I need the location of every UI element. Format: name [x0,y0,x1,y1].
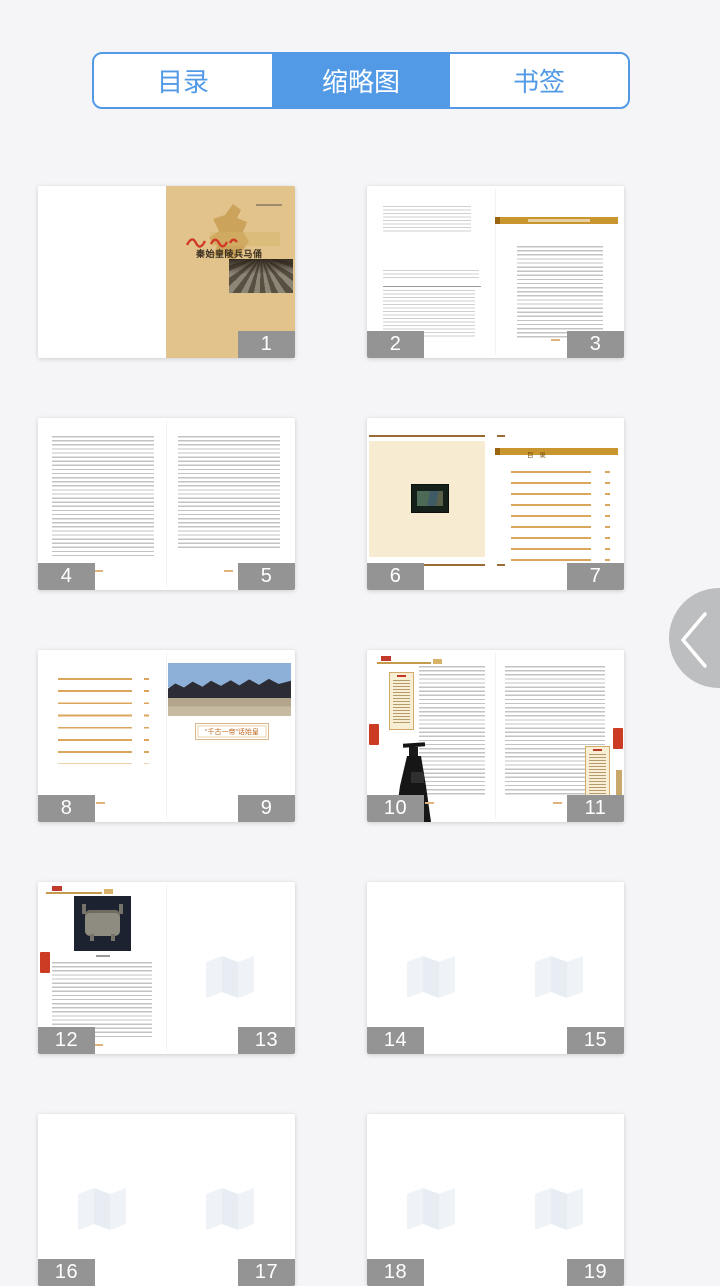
spread-spine [495,189,496,355]
chapter-title-text [528,219,590,222]
page-number-badge: 8 [38,795,95,822]
rule-line [497,564,505,566]
cover-author-line [256,204,282,206]
spread-spine [166,653,167,819]
bronze-chariot-photo [411,484,449,513]
page-number-badge: 18 [367,1259,424,1286]
spread-spine [166,421,167,587]
body-text-block [517,246,603,338]
sidebar-note-box [389,672,414,730]
view-tab-bar: 目录 缩略图 书签 [92,52,630,109]
page-thumbnail-8-9[interactable]: “千古一帝”话始皇 8 9 [38,650,295,822]
chevron-left-icon [675,610,719,670]
page-number-badge: 6 [367,563,424,590]
spread-spine [166,885,167,1051]
page-thumbnail-12-13[interactable]: 12 13 [38,882,295,1054]
page-number-badge: 11 [567,795,624,822]
header-ornament-tail [433,659,442,664]
tab-bookmarks[interactable]: 书签 [450,54,628,107]
drawer-collapse-handle[interactable] [669,588,720,688]
copyright-text-block [383,206,471,232]
page-thumbnail-10-11[interactable]: 10 11 [367,650,624,822]
page-thumbnail-cover[interactable]: 秦始皇陵兵马俑 1 [38,186,295,358]
header-ornament-line [46,892,102,894]
page-number-badge: 7 [567,563,624,590]
sculpture-silhouette [168,675,291,698]
folio-mark [425,802,434,804]
toc-entries [511,471,591,570]
page-thumbnail-2-3[interactable]: 2 3 [367,186,624,358]
page-thumbnail-6-7[interactable]: 目 录 6 7 [367,418,624,590]
page-loading-placeholder-icon [535,956,583,998]
page-thumbnail-4-5[interactable]: 4 5 [38,418,295,590]
rule-line [497,435,505,437]
body-text-block [52,436,154,556]
page-number-badge: 4 [38,563,95,590]
rule-line [369,435,485,437]
toc-entries [58,678,132,764]
page-loading-placeholder-icon [407,1188,455,1230]
bronze-ding-photo [74,896,131,951]
page-loading-placeholder-icon [206,956,254,998]
page-number-badge: 3 [567,331,624,358]
spread-spine [495,653,496,819]
folio-mark [96,802,105,804]
cip-title-block [383,270,479,279]
page-loading-placeholder-icon [407,956,455,998]
seal-stamp [369,724,379,745]
toc-title-bar [500,448,618,455]
toc-title: 目 录 [527,449,548,459]
page-loading-placeholder-icon [206,1188,254,1230]
header-ornament-red [52,886,62,891]
page-thumbnail-18-19[interactable]: 18 19 [367,1114,624,1286]
cover-photo [229,259,293,293]
page-number-badge: 9 [238,795,295,822]
page-number-badge: 2 [367,331,424,358]
page-loading-placeholder-icon [535,1188,583,1230]
page-thumbnail-14-15[interactable]: 14 15 [367,882,624,1054]
page-thumbnail-16-17[interactable]: 16 17 [38,1114,295,1286]
page-number-badge: 5 [238,563,295,590]
folio-mark [94,570,103,572]
header-ornament-line [377,662,431,664]
page-number-badge: 1 [238,331,295,358]
page-number-badge: 16 [38,1259,95,1286]
toc-page-numbers [605,471,610,570]
page-number-badge: 17 [238,1259,295,1286]
page-loading-placeholder-icon [78,1188,126,1230]
horse-sculpture-photo [168,663,291,716]
page-number-badge: 15 [567,1027,624,1054]
folio-mark [224,570,233,572]
page-number-badge: 14 [367,1027,424,1054]
tab-table-of-contents[interactable]: 目录 [94,54,272,107]
folio-mark [94,1044,103,1046]
seal-stamp [40,952,50,973]
page-number-badge: 19 [567,1259,624,1286]
seal-stamp [613,728,623,749]
header-ornament-red [381,656,391,661]
header-ornament-tail [104,889,113,894]
rule-line [383,286,481,287]
photo-caption-line [96,955,110,957]
page-number-badge: 13 [238,1027,295,1054]
toc-page-numbers [144,678,149,764]
folio-mark [551,339,560,341]
page-number-badge: 12 [38,1027,95,1054]
tab-thumbnails[interactable]: 缩略图 [272,54,450,107]
folio-mark [553,802,562,804]
body-text-block [178,436,280,548]
chapter-caption-box: “千古一帝”话始皇 [195,723,269,740]
page-number-badge: 10 [367,795,424,822]
chapter-title-bar [500,217,618,224]
